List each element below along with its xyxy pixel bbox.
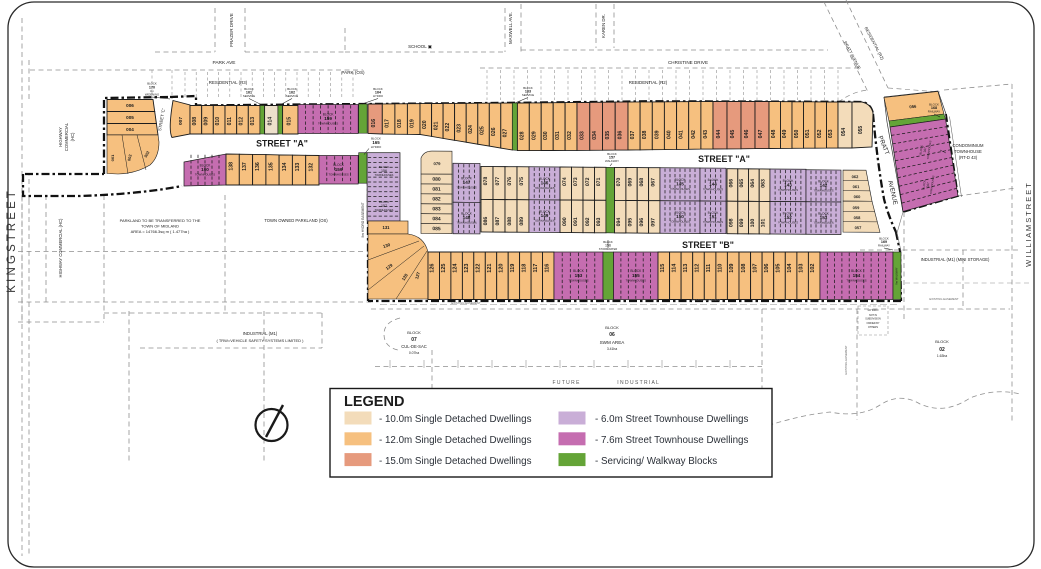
svg-text:- 12.0m Single Detached Dwell: - 12.0m Single Detached Dwellings — [379, 435, 532, 446]
svg-text:TOWNHOUSES: TOWNHOUSES — [534, 186, 554, 190]
svg-text:067: 067 — [650, 178, 656, 187]
svg-text:SWM AREA: SWM AREA — [600, 340, 626, 345]
svg-text:041: 041 — [679, 130, 685, 139]
svg-text:097: 097 — [650, 218, 656, 227]
svg-text:111: 111 — [706, 264, 712, 273]
svg-text:146: 146 — [541, 180, 549, 185]
svg-text:153: 153 — [575, 273, 583, 278]
svg-text:- 6.0m Street Townhouse Dwell: - 6.0m Street Townhouse Dwellings — [595, 414, 748, 425]
svg-text:TOWNHOUSES: TOWNHOUSES — [703, 187, 723, 191]
svg-text:TOWNHOUSES: TOWNHOUSES — [456, 185, 476, 189]
svg-text:167: 167 — [923, 147, 928, 153]
svg-text:057: 057 — [855, 225, 862, 230]
svg-text:159: 159 — [335, 167, 343, 172]
svg-text:093: 093 — [596, 217, 602, 226]
svg-text:BLOCK: BLOCK — [935, 339, 949, 344]
svg-text:099: 099 — [739, 218, 745, 227]
svg-text:HYDRO: HYDRO — [373, 94, 384, 98]
svg-text:081: 081 — [432, 187, 441, 193]
svg-text:056: 056 — [909, 104, 917, 110]
svg-text:3.41ha: 3.41ha — [607, 347, 617, 351]
svg-text:077: 077 — [495, 177, 501, 186]
svg-text:RAILWAY: RAILWAY — [878, 244, 890, 248]
svg-text:TOWNHOUSES: TOWNHOUSES — [626, 278, 646, 282]
svg-text:0.07ha: 0.07ha — [409, 351, 419, 355]
svg-text:051: 051 — [805, 129, 811, 138]
svg-text:048: 048 — [771, 129, 777, 138]
svg-text:TOWNHOUSES: TOWNHOUSES — [670, 187, 690, 191]
svg-text:PARKLAND TO BE TRANSFERRED TO: PARKLAND TO BE TRANSFERRED TO THE — [120, 218, 201, 223]
svg-text:EXISTING EASEMENT: EXISTING EASEMENT — [929, 297, 959, 301]
svg-text:009: 009 — [204, 117, 210, 126]
svg-text:090: 090 — [562, 217, 568, 226]
svg-text:060: 060 — [854, 194, 861, 199]
svg-text:INDUSTRIAL (M1): INDUSTRIAL (M1) — [243, 331, 278, 336]
svg-text:142: 142 — [820, 183, 828, 188]
svg-text:071: 071 — [596, 177, 602, 186]
svg-text:K I N G S T R E E T: K I N G S T R E E T — [6, 191, 18, 293]
svg-text:TOWNHOUSES: TOWNHOUSES — [375, 208, 394, 212]
svg-text:018: 018 — [397, 119, 403, 128]
svg-text:132: 132 — [308, 163, 314, 172]
svg-text:- Servicing/ Walkway Blocks: - Servicing/ Walkway Blocks — [595, 456, 717, 467]
svg-text:103: 103 — [799, 264, 805, 273]
svg-text:035: 035 — [605, 131, 611, 140]
svg-text:TOWNHOUSES: TOWNHOUSES — [328, 172, 348, 176]
svg-text:083: 083 — [432, 206, 441, 212]
svg-text:TOWNHOUSES: TOWNHOUSES — [703, 220, 723, 224]
svg-text:OWNED BY: OWNED BY — [866, 322, 879, 325]
svg-text:CUL-DE-SAC: CUL-DE-SAC — [401, 344, 427, 349]
svg-text:110: 110 — [718, 264, 724, 273]
svg-text:020: 020 — [422, 120, 428, 129]
svg-text:TOWNHOUSES: TOWNHOUSES — [534, 219, 554, 223]
svg-text:034: 034 — [592, 131, 598, 140]
svg-text:KAREN DR.: KAREN DR. — [601, 14, 606, 38]
svg-text:027: 027 — [503, 129, 509, 138]
svg-text:SERVICE: SERVICE — [243, 94, 255, 98]
svg-text:079: 079 — [434, 161, 442, 166]
svg-text:135: 135 — [269, 162, 275, 171]
svg-text:( TRW=VEHICLE SAFETY SYSTEMS L: ( TRW=VEHICLE SAFETY SYSTEMS LIMITED ) — [216, 338, 304, 343]
svg-text:SCHOOL ▣: SCHOOL ▣ — [408, 44, 432, 49]
svg-text:078: 078 — [483, 177, 489, 186]
svg-text:PARK AVE: PARK AVE — [212, 60, 235, 66]
svg-text:147: 147 — [463, 180, 471, 185]
svg-text:011: 011 — [227, 117, 233, 125]
svg-text:037: 037 — [630, 131, 636, 140]
svg-text:010: 010 — [215, 117, 221, 126]
svg-text:082: 082 — [432, 196, 441, 202]
svg-text:FRAZER DRIVE: FRAZER DRIVE — [229, 13, 234, 47]
svg-text:157: 157 — [381, 204, 387, 208]
svg-text:074: 074 — [562, 177, 568, 186]
svg-text:096: 096 — [639, 218, 645, 227]
svg-text:049: 049 — [782, 129, 788, 138]
svg-text:- 10.0m Single Detached Dwell: - 10.0m Single Detached Dwellings — [379, 414, 532, 425]
svg-text:150: 150 — [676, 214, 684, 219]
svg-text:017: 017 — [385, 119, 391, 128]
svg-text:052: 052 — [817, 129, 823, 138]
svg-text:115: 115 — [660, 264, 666, 273]
svg-text:080: 080 — [432, 177, 441, 183]
svg-text:138: 138 — [229, 162, 235, 171]
svg-text:TOWNHOUSES: TOWNHOUSES — [670, 220, 690, 224]
svg-text:SERVICE: SERVICE — [522, 93, 534, 97]
svg-text:155: 155 — [632, 273, 640, 278]
svg-text:134: 134 — [282, 162, 288, 171]
svg-text:072: 072 — [585, 177, 591, 186]
svg-text:148: 148 — [463, 215, 471, 220]
svg-text:092: 092 — [585, 217, 591, 226]
svg-text:025: 025 — [480, 126, 486, 135]
svg-text:151: 151 — [709, 214, 717, 219]
svg-text:007: 007 — [178, 117, 184, 125]
svg-text:030: 030 — [543, 131, 549, 140]
svg-text:TOWNHOUSES: TOWNHOUSES — [318, 122, 338, 126]
svg-text:137: 137 — [242, 162, 248, 171]
svg-text:063: 063 — [761, 179, 767, 188]
svg-text:117: 117 — [533, 264, 539, 273]
svg-text:EXISTING EASEMENT: EXISTING EASEMENT — [844, 345, 848, 375]
svg-text:073: 073 — [573, 177, 579, 186]
svg-text:059: 059 — [853, 205, 860, 210]
svg-text:045: 045 — [730, 130, 736, 139]
svg-text:040: 040 — [667, 130, 673, 139]
svg-text:032: 032 — [567, 131, 573, 140]
svg-text:BLOCK: BLOCK — [407, 330, 421, 335]
svg-text:TOWNHOUSES: TOWNHOUSES — [813, 221, 833, 225]
svg-text:RESIDENTIAL (R3): RESIDENTIAL (R3) — [209, 80, 248, 85]
svg-text:013: 013 — [250, 117, 256, 126]
svg-text:038: 038 — [642, 130, 648, 139]
svg-text:145: 145 — [676, 181, 684, 186]
svg-text:159: 159 — [324, 116, 332, 121]
svg-text:SUBDIVISION: SUBDIVISION — [865, 318, 881, 321]
svg-text:TOWNHOUSES: TOWNHOUSES — [456, 221, 476, 225]
svg-text:07: 07 — [411, 337, 417, 343]
svg-text:085: 085 — [432, 226, 441, 232]
svg-text:055: 055 — [858, 126, 864, 135]
svg-text:02: 02 — [939, 347, 945, 353]
svg-text:STREET "A": STREET "A" — [256, 139, 308, 149]
svg-text:HYDRO: HYDRO — [371, 145, 382, 149]
svg-text:120: 120 — [499, 264, 505, 273]
svg-text:167: 167 — [926, 182, 931, 188]
svg-text:TOWNHOUSES: TOWNHOUSES — [813, 188, 833, 192]
svg-text:TOWNHOUSES: TOWNHOUSES — [195, 173, 215, 177]
svg-text:TOWNHOUSES: TOWNHOUSES — [846, 278, 866, 282]
svg-text:143: 143 — [784, 182, 792, 187]
svg-text:124: 124 — [453, 263, 459, 273]
svg-text:123: 123 — [464, 264, 470, 273]
svg-text:106: 106 — [764, 264, 770, 273]
svg-text:STORMWATER: STORMWATER — [599, 247, 618, 251]
svg-text:RESIDENTIAL (R2): RESIDENTIAL (R2) — [629, 80, 668, 85]
svg-text:091: 091 — [573, 217, 579, 226]
svg-text:125: 125 — [441, 264, 447, 273]
svg-text:160: 160 — [201, 167, 209, 172]
svg-text:008: 008 — [192, 117, 198, 126]
svg-text:054: 054 — [841, 128, 847, 137]
svg-text:PARK (OS): PARK (OS) — [341, 70, 365, 75]
svg-text:W I L L I A M S T R E E T: W I L L I A M S T R E E T — [1024, 183, 1033, 267]
svg-text:- 7.6m Street Townhouse Dwell: - 7.6m Street Townhouse Dwellings — [595, 435, 748, 446]
svg-text:(RT-D 43): (RT-D 43) — [959, 155, 978, 160]
svg-text:TOWNHOUSES: TOWNHOUSES — [568, 278, 588, 282]
svg-text:065: 065 — [739, 179, 745, 188]
svg-text:TOWNHOUSE: TOWNHOUSE — [954, 149, 982, 154]
svg-text:068: 068 — [639, 178, 645, 187]
svg-text:133: 133 — [295, 163, 301, 172]
svg-text:044: 044 — [716, 130, 722, 139]
svg-text:112: 112 — [695, 264, 701, 273]
svg-text:026: 026 — [491, 127, 497, 136]
svg-text:118: 118 — [521, 264, 527, 273]
svg-text:1.63ha: 1.63ha — [937, 354, 947, 358]
svg-text:STREET "A": STREET "A" — [698, 154, 750, 164]
svg-text:084: 084 — [432, 216, 441, 222]
svg-text:CONDOMINIUM: CONDOMINIUM — [953, 143, 984, 148]
svg-text:076: 076 — [507, 177, 513, 186]
svg-text:121: 121 — [487, 264, 493, 273]
svg-text:101: 101 — [761, 219, 767, 228]
svg-text:TOWN OF MIDLAND: TOWN OF MIDLAND — [141, 224, 179, 229]
svg-text:COMMERCIAL: COMMERCIAL — [64, 122, 69, 151]
svg-text:088: 088 — [507, 217, 513, 226]
svg-text:005: 005 — [126, 115, 134, 120]
svg-text:116: 116 — [544, 264, 550, 273]
svg-text:012: 012 — [239, 117, 245, 126]
svg-text:HIGHWAY COMMERCIAL (HC): HIGHWAY COMMERCIAL (HC) — [58, 218, 63, 277]
svg-text:HYDRO: HYDRO — [868, 308, 880, 312]
svg-text:EXISTING EASEMENT: EXISTING EASEMENT — [691, 298, 721, 302]
svg-text:RAILWAY: RAILWAY — [928, 110, 941, 114]
svg-text:061: 061 — [853, 184, 860, 189]
svg-text:053: 053 — [828, 129, 834, 138]
svg-text:CHRISTINE DRIVE: CHRISTINE DRIVE — [668, 60, 708, 65]
svg-text:006: 006 — [126, 103, 134, 108]
svg-text:113: 113 — [683, 264, 689, 273]
svg-text:046: 046 — [744, 130, 750, 139]
svg-text:069: 069 — [628, 178, 634, 187]
svg-text:109: 109 — [729, 264, 735, 273]
svg-text:062: 062 — [852, 174, 859, 179]
svg-text:024: 024 — [468, 125, 474, 134]
svg-text:029: 029 — [531, 131, 537, 140]
svg-text:031: 031 — [555, 131, 561, 140]
svg-text:BLOCK: BLOCK — [605, 325, 619, 330]
svg-text:144: 144 — [709, 182, 717, 187]
svg-text:075: 075 — [519, 177, 525, 186]
svg-text:100: 100 — [750, 219, 756, 228]
svg-text:104: 104 — [787, 263, 793, 273]
svg-text:028: 028 — [519, 131, 525, 140]
svg-text:SERVICE: SERVICE — [286, 94, 298, 98]
svg-text:HIGHWAY: HIGHWAY — [58, 127, 63, 147]
svg-text:AREA = 14766.3sq m ( 1.477ha ): AREA = 14766.3sq m ( 1.477ha ) — [131, 229, 190, 234]
svg-text:F U T U R E: F U T U R E — [552, 380, 580, 386]
svg-text:136: 136 — [255, 162, 261, 171]
svg-text:043: 043 — [703, 130, 709, 139]
svg-text:06: 06 — [609, 332, 615, 338]
svg-text:098: 098 — [728, 218, 734, 227]
svg-text:TOWNHOUSES: TOWNHOUSES — [778, 220, 798, 224]
svg-text:9m HYDRO EASEMENT: 9m HYDRO EASEMENT — [361, 202, 365, 237]
svg-text:014: 014 — [267, 117, 273, 126]
svg-text:066: 066 — [728, 179, 734, 188]
svg-text:152: 152 — [784, 215, 792, 220]
svg-text:001: 001 — [110, 154, 115, 161]
svg-text:102: 102 — [810, 264, 816, 273]
svg-text:047: 047 — [758, 130, 764, 139]
svg-text:015: 015 — [286, 117, 292, 126]
svg-text:058: 058 — [854, 215, 861, 220]
svg-text:033: 033 — [579, 131, 585, 140]
svg-text:016: 016 — [371, 119, 377, 128]
svg-text:126: 126 — [430, 264, 436, 273]
svg-text:WIDENING: WIDENING — [145, 93, 159, 97]
svg-text:039: 039 — [654, 130, 660, 139]
svg-text:156: 156 — [381, 169, 387, 173]
svg-text:108: 108 — [741, 264, 747, 273]
svg-text:114: 114 — [671, 263, 677, 273]
svg-text:122: 122 — [476, 264, 482, 273]
svg-text:004: 004 — [126, 127, 134, 132]
svg-text:089: 089 — [519, 217, 525, 226]
svg-text:MAXWELL AVE.: MAXWELL AVE. — [508, 12, 513, 44]
svg-text:9m WALKWAY: 9m WALKWAY — [895, 267, 899, 284]
svg-text:021: 021 — [433, 121, 439, 130]
svg-text:149: 149 — [541, 213, 549, 218]
svg-text:050: 050 — [794, 129, 800, 138]
svg-text:119: 119 — [510, 264, 516, 273]
svg-text:042: 042 — [691, 130, 697, 139]
svg-text:TOWN OWNED PARKLAND (OS): TOWN OWNED PARKLAND (OS) — [264, 218, 328, 223]
svg-text:064: 064 — [750, 179, 756, 188]
svg-text:087: 087 — [495, 217, 501, 226]
svg-text:023: 023 — [456, 124, 462, 133]
svg-text:WALKWAY: WALKWAY — [605, 159, 619, 163]
svg-text:094: 094 — [616, 218, 622, 227]
svg-text:107: 107 — [752, 264, 758, 273]
svg-text:STREET "B": STREET "B" — [682, 240, 734, 250]
svg-text:086: 086 — [483, 217, 489, 226]
svg-text:- 15.0m Single Detached Dwell: - 15.0m Single Detached Dwellings — [379, 456, 532, 467]
svg-text:105: 105 — [776, 264, 782, 273]
svg-text:154: 154 — [853, 273, 861, 278]
svg-text:LEGEND: LEGEND — [344, 394, 404, 410]
svg-text:019: 019 — [410, 119, 416, 128]
svg-text:OTHERS: OTHERS — [868, 326, 878, 329]
svg-text:(HC): (HC) — [70, 132, 75, 141]
svg-text:153: 153 — [820, 215, 828, 220]
svg-text:I N D U S T R I A L: I N D U S T R I A L — [617, 380, 659, 386]
svg-text:131: 131 — [383, 225, 391, 230]
svg-text:095: 095 — [628, 218, 634, 227]
svg-text:156: 156 — [605, 244, 611, 248]
svg-text:022: 022 — [445, 123, 451, 132]
svg-text:036: 036 — [618, 131, 624, 140]
svg-text:INDUSTRIAL (M1) (MINI STORAGE: INDUSTRIAL (M1) (MINI STORAGE) — [921, 257, 990, 262]
svg-text:TOWNHOUSES: TOWNHOUSES — [375, 173, 394, 177]
svg-text:TOWNHOUSES: TOWNHOUSES — [778, 188, 798, 192]
svg-text:070: 070 — [616, 178, 622, 187]
